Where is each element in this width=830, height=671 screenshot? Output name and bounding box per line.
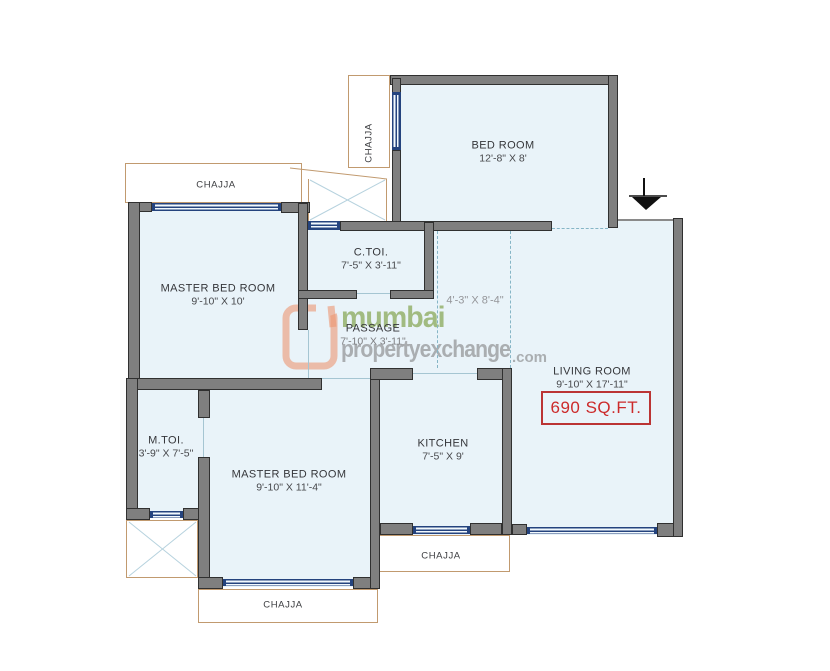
- chajja-label-top: CHAJJA: [196, 179, 236, 190]
- chajja-label-bottom: CHAJJA: [263, 599, 303, 610]
- chajja-label-vertical: CHAJJA: [363, 123, 374, 163]
- bedroom-label: BED ROOM 12'-8" X 8': [471, 139, 534, 164]
- master-bed-bottom-label: MASTER BED ROOM 9'-10" X 11'-4": [232, 468, 347, 493]
- entrance-arrow-icon: [629, 178, 667, 210]
- master-toilet-label: M.TOI. 3'-9" X 7'-5": [139, 434, 194, 459]
- floor-plan: mumbai propertyexchange .com BED ROOM 12…: [0, 0, 830, 671]
- passage-label: PASSAGE 7'-10" X 3'-11": [340, 322, 406, 347]
- common-toilet-label: C.TOI. 7'-5" X 3'-11": [341, 246, 401, 271]
- area-badge: 690 SQ.FT.: [541, 391, 651, 425]
- master-bed-top-label: MASTER BED ROOM 9'-10" X 10': [161, 282, 276, 307]
- foyer-dims-label: 4'-3" X 8'-4": [446, 295, 503, 308]
- overlay-graphics: [0, 0, 830, 671]
- living-room-label: LIVING ROOM 9'-10" X 17'-11": [553, 365, 631, 390]
- chajja-label-kitchen: CHAJJA: [421, 550, 461, 561]
- kitchen-label: KITCHEN 7'-5" X 9': [417, 437, 468, 462]
